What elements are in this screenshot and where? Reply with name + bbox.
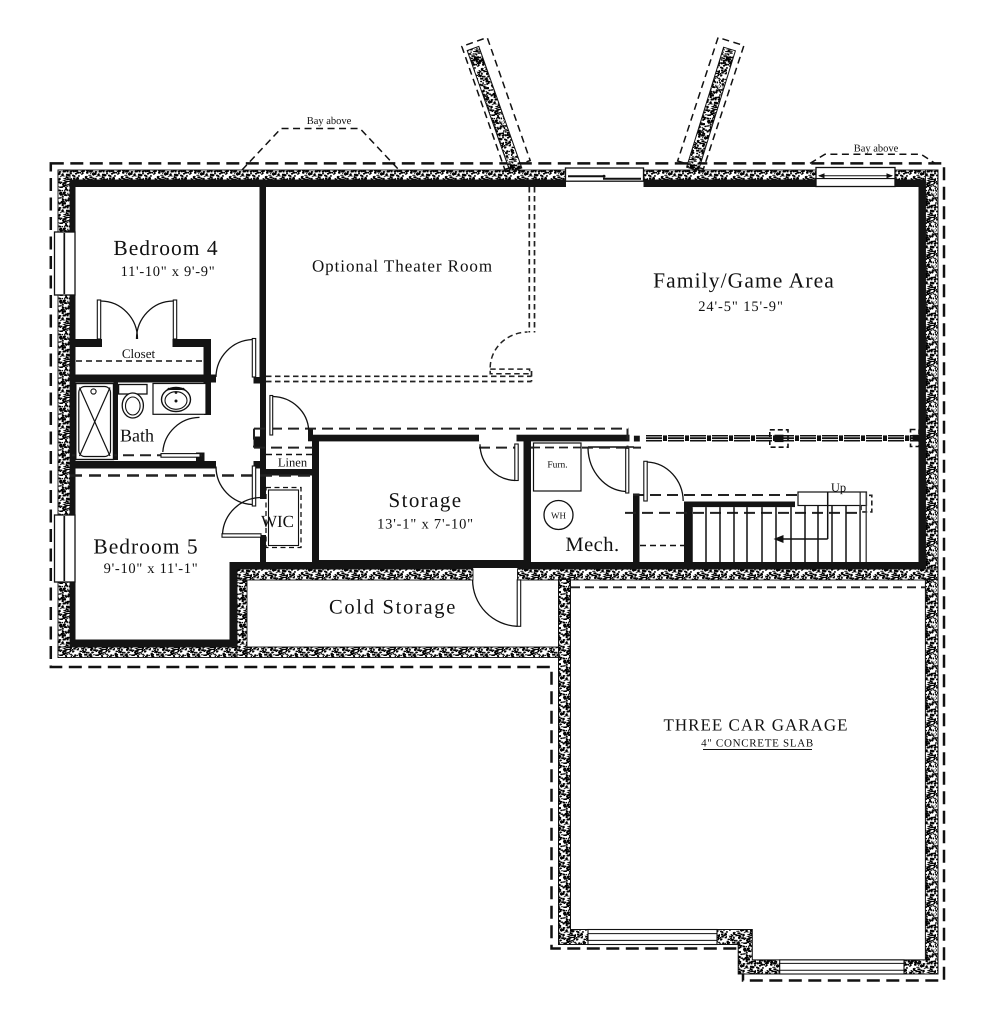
- svg-text:13'-1" x 7'-10": 13'-1" x 7'-10": [377, 517, 474, 533]
- svg-text:Up: Up: [831, 481, 846, 495]
- svg-text:Bedroom 4: Bedroom 4: [113, 236, 218, 260]
- svg-text:Optional Theater Room: Optional Theater Room: [312, 257, 493, 276]
- svg-text:Mech.: Mech.: [565, 534, 619, 556]
- svg-text:11'-10" x 9'-9": 11'-10" x 9'-9": [121, 264, 216, 280]
- svg-text:Linen: Linen: [278, 456, 308, 470]
- svg-text:WIC: WIC: [261, 512, 294, 531]
- svg-text:Bath: Bath: [120, 426, 154, 446]
- svg-text:9'-10" x 11'-1": 9'-10" x 11'-1": [104, 561, 199, 577]
- svg-text:WH: WH: [551, 511, 566, 521]
- svg-text:Cold Storage: Cold Storage: [329, 597, 457, 619]
- svg-text:Family/Game Area: Family/Game Area: [653, 269, 835, 293]
- svg-text:Bay above: Bay above: [854, 144, 899, 155]
- svg-text:Storage: Storage: [389, 488, 463, 512]
- svg-text:24'-5" 15'-9": 24'-5" 15'-9": [698, 299, 784, 315]
- svg-text:Bedroom 5: Bedroom 5: [93, 535, 198, 559]
- svg-text:THREE CAR GARAGE: THREE CAR GARAGE: [663, 716, 848, 735]
- svg-text:Closet: Closet: [122, 346, 156, 361]
- svg-text:Furn.: Furn.: [547, 461, 567, 471]
- svg-text:4" CONCRETE SLAB: 4" CONCRETE SLAB: [701, 738, 814, 750]
- svg-text:Bay above: Bay above: [307, 116, 352, 127]
